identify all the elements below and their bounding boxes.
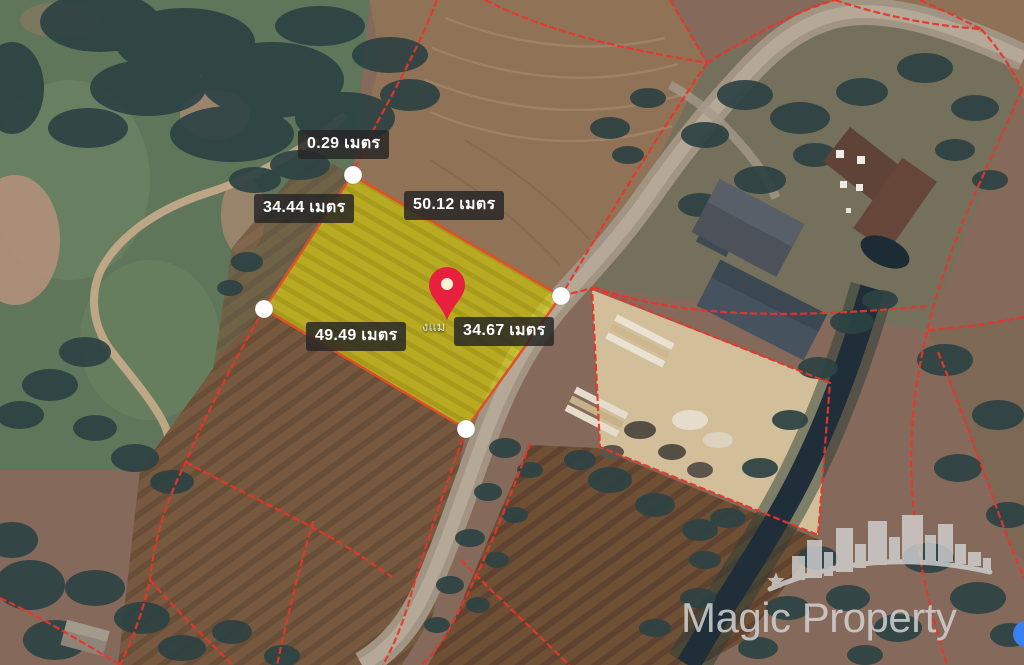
vertex-dot-bottom <box>457 420 475 438</box>
vertex-dot-left <box>255 300 273 318</box>
roof-skylight <box>840 181 847 188</box>
vertex-dot-top <box>344 166 362 184</box>
roof-skylight <box>836 150 844 158</box>
map-place-label-fragment: งแม <box>422 316 445 337</box>
vertex-dot-right <box>552 287 570 305</box>
measurement-label-northwest-edge: 34.44 เมตร <box>254 194 354 223</box>
roof-skylight <box>857 156 865 164</box>
measurement-label-top: 0.29 เมตร <box>298 130 389 159</box>
measurement-label-northeast-edge: 50.12 เมตร <box>404 191 504 220</box>
magic-property-watermark-text: Magic Property <box>681 594 956 642</box>
roof-skylight <box>846 208 851 213</box>
measurement-label-southeast-edge: 34.67 เมตร <box>454 317 554 346</box>
measurement-label-southwest-edge: 49.49 เมตร <box>306 322 406 351</box>
roof-skylight <box>856 184 863 191</box>
property-satellite-map: งแม 0.29 เมตร 34.44 เมตร 50.12 เมตร 49.4… <box>0 0 1024 665</box>
